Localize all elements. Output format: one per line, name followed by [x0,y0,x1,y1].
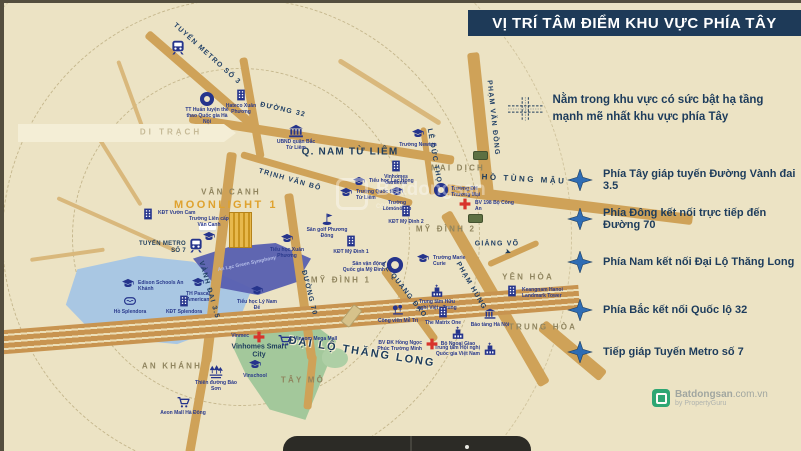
area-label: YÊN HÒA [502,273,554,282]
area-label: MỸ ĐÌNH 1 [311,276,371,285]
watermark-sub: com vn [376,201,486,210]
batdongsan-logo-icon [652,389,670,407]
bullet-text: Phía Nam kết nối Đại Lộ Thăng Long [603,256,794,268]
cart-icon [278,334,291,347]
watermark-logo-icon [336,178,368,210]
marker-label: Tiểu học Xuân Phương [264,247,310,259]
bullet-item: Phía Bắc kết nối Quốc lộ 32 [565,299,797,321]
marker-label: Trường Marie Curie [433,255,479,267]
marker-label: KĐT Mỹ Đình 2 [383,219,429,225]
area-label: AN KHÁNH [142,362,202,371]
metro-icon [189,238,204,253]
church-icon [483,342,497,356]
park-icon [392,304,405,317]
marker-label: Vinmec [203,333,249,339]
building-icon [506,285,519,298]
marker-label: TH Pascal American [175,291,221,303]
di-trach-road [18,124,236,142]
landmark-icon [484,308,497,321]
ring-icon [200,92,215,107]
building-icon [390,160,403,173]
marker-label: Tiểu học Lý Nam Đế [234,299,280,311]
area-label: TRUNG HÒA [509,323,577,332]
bullet-text: Phía Bắc kết nối Quốc lộ 32 [603,304,747,316]
bullet-item: Tiếp giáp Tuyến Metro số 7 [565,341,797,363]
map-infographic: VÂN CANHAN KHÁNHTÂY MỖMỸ ĐÌNH 1MỸ ĐÌNH 2… [0,0,801,451]
school-icon [412,128,425,141]
watermark-domain: .com.vn [733,389,768,400]
trees-icon [209,365,224,380]
marker-label: Keangnam Hanoi Landmark Tower [522,287,568,299]
watermark-brand: Batdongsan [675,389,733,400]
building-icon [235,89,248,102]
lake-icon [124,295,137,308]
corner-watermark: Batdongsan.com.vn by PropertyGuru [652,389,768,407]
watermark-byline: by PropertyGuru [675,400,768,407]
school-icon [122,278,135,291]
school-icon [417,253,430,266]
compass-star-icon [565,208,595,230]
road-shield [473,151,488,160]
area-label: TÂY MỖ [281,376,325,385]
road-shield [468,214,483,223]
bullet-item: Phía Đông kết nối trực tiếp đến Đường 70 [565,207,797,231]
stadium-icon [386,256,404,274]
area-label: MỸ ĐÌNH 2 [416,225,476,234]
marker-label: Công viên Mễ Trì [375,318,421,324]
marker-label: Trường Liên cấp Vân Canh [186,216,232,228]
compass-star-icon [565,169,595,191]
school-icon [251,285,264,298]
school-icon [203,231,216,244]
compass-star-icon [565,341,595,363]
frame-edge-left [0,0,4,451]
marker-label: Trung tâm Hội nghị Quốc gia Việt Nam [434,345,480,357]
bullet-text: Phía Đông kết nối trực tiếp đến Đường 70 [603,207,797,231]
building-icon [437,306,450,319]
frame-edge-top [0,0,801,3]
marker-label: TT Huấn luyện thể thao Quốc gia Hà Nội [184,107,230,125]
golf-icon [321,213,334,226]
metro-icon [171,40,186,55]
bottom-video-bar[interactable] [283,436,531,451]
marker-label: Hồ Splendora [107,309,153,315]
marker-label: Vinschool [232,373,278,379]
bullet-text: Tiếp giáp Tuyến Metro số 7 [603,346,744,358]
marker-label: Bảo tàng Hà Nội [467,322,513,328]
center-watermark: Batdongsan com vn [336,178,486,210]
school-icon [249,359,262,372]
road-label: DI TRẠCH [140,128,202,137]
marker-label: TUYẾN METRO SỐ 7 [132,241,186,255]
gov-icon [289,124,304,139]
compass-star-icon [565,299,595,321]
marker-label: BV ĐK Hồng Ngọc Phúc Trường Minh [376,340,422,352]
hospital-icon [253,331,266,344]
building-icon [345,235,358,248]
church-icon [451,326,465,340]
bullet-item: Phía Nam kết nối Đại Lộ Thăng Long [565,251,797,273]
bullet-text: Phía Tây giáp tuyến Đường Vành đai 3.5 [603,168,797,192]
crossroads-icon [508,90,543,128]
marker-label: Sân vận động Quốc gia Mỹ Đình [339,261,385,273]
church-icon [430,284,444,298]
bullet-item: Phía Tây giáp tuyến Đường Vành đai 3.5 [565,168,797,192]
intro-text: Nằm trong khu vực có sức bật hạ tầng mạn… [553,92,793,127]
road-label: GIẢNG VÕ [475,241,520,248]
bottom-bar-divider [410,436,412,451]
moonlight-tower [229,212,252,248]
compass-star-icon [565,251,595,273]
bottom-bar-dot [465,445,469,449]
building-icon [142,208,155,221]
marker-label: Vincom Mega Mall [294,336,340,342]
marker-label: KĐT Splendora [161,309,207,315]
title-bar: VỊ TRÍ TÂM ĐIỂM KHU VỰC PHÍA TÂY [468,10,801,36]
watermark-brand: Batdongsan [376,179,486,201]
marker-label: Thiên đường Bảo Sơn [193,380,239,392]
marker-label: Aeon Mall Hà Đông [160,410,206,416]
cart-icon [177,396,190,409]
marker-label: KĐT Mỹ Đình 1 [328,249,374,255]
marker-label: UBND quận Bắc Từ Liêm [273,139,319,151]
area-label: VÂN CANH [201,188,261,197]
school-icon [281,233,294,246]
school-icon [192,277,205,290]
hospital-icon [426,338,439,351]
marker-label: Trường Newton [395,142,441,148]
page-title: VỊ TRÍ TÂM ĐIỂM KHU VỰC PHÍA TÂY [492,15,777,32]
intro-highlight: Nằm trong khu vực có sức bật hạ tầng mạn… [508,90,793,128]
marker-label: Sân golf Phương Đông [304,227,350,239]
